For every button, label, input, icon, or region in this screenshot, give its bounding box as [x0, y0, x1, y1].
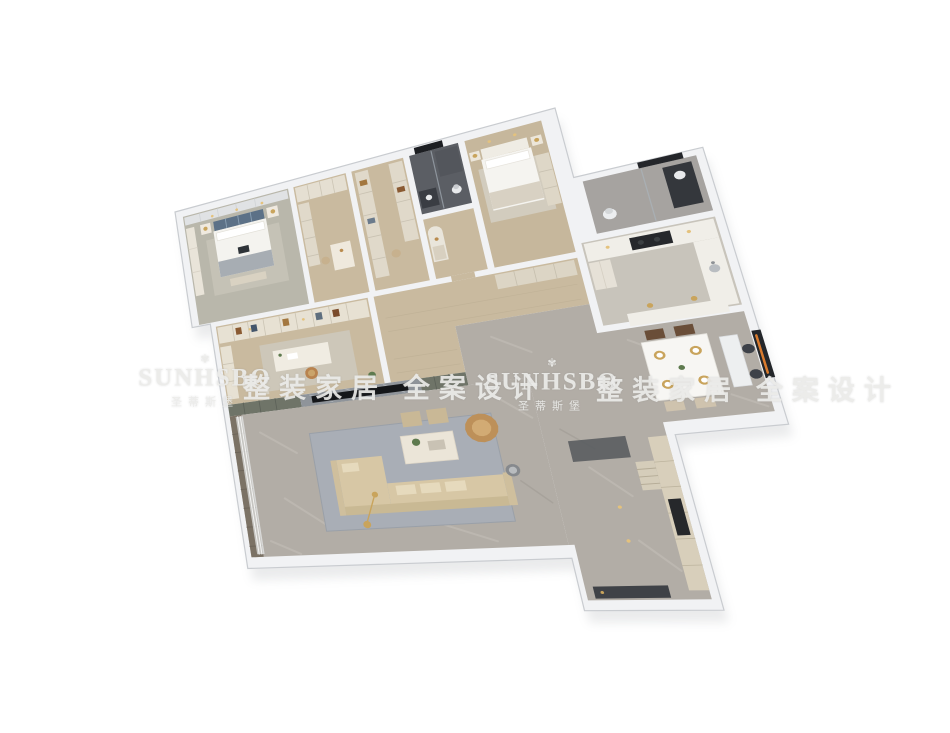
floorplan-3d-scene [0, 0, 950, 733]
floorplan-render: ✾SUNHSBO圣蒂斯堡整装家居 全案设计✾SUNHSBO圣蒂斯堡整装家居 全案… [0, 0, 950, 733]
